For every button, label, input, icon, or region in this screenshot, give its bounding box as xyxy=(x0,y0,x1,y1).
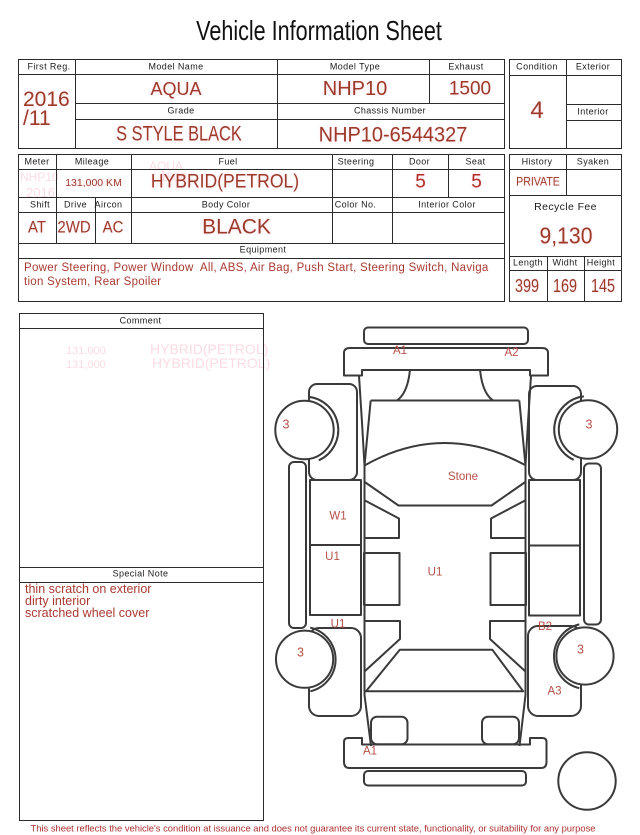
svg-text:A1: A1 xyxy=(393,345,407,357)
svg-text:3: 3 xyxy=(577,643,584,657)
svg-text:3: 3 xyxy=(297,646,304,660)
svg-text:A3: A3 xyxy=(547,686,561,698)
svg-text:3: 3 xyxy=(586,418,593,432)
svg-text:W1: W1 xyxy=(329,511,346,523)
svg-text:3: 3 xyxy=(283,418,290,432)
svg-text:U1: U1 xyxy=(331,619,346,631)
svg-text:A2: A2 xyxy=(504,347,518,359)
svg-text:B2: B2 xyxy=(538,621,552,633)
svg-text:A1: A1 xyxy=(363,746,377,758)
svg-text:Stone: Stone xyxy=(448,471,478,483)
svg-text:U1: U1 xyxy=(325,551,340,563)
svg-text:U1: U1 xyxy=(428,567,443,579)
